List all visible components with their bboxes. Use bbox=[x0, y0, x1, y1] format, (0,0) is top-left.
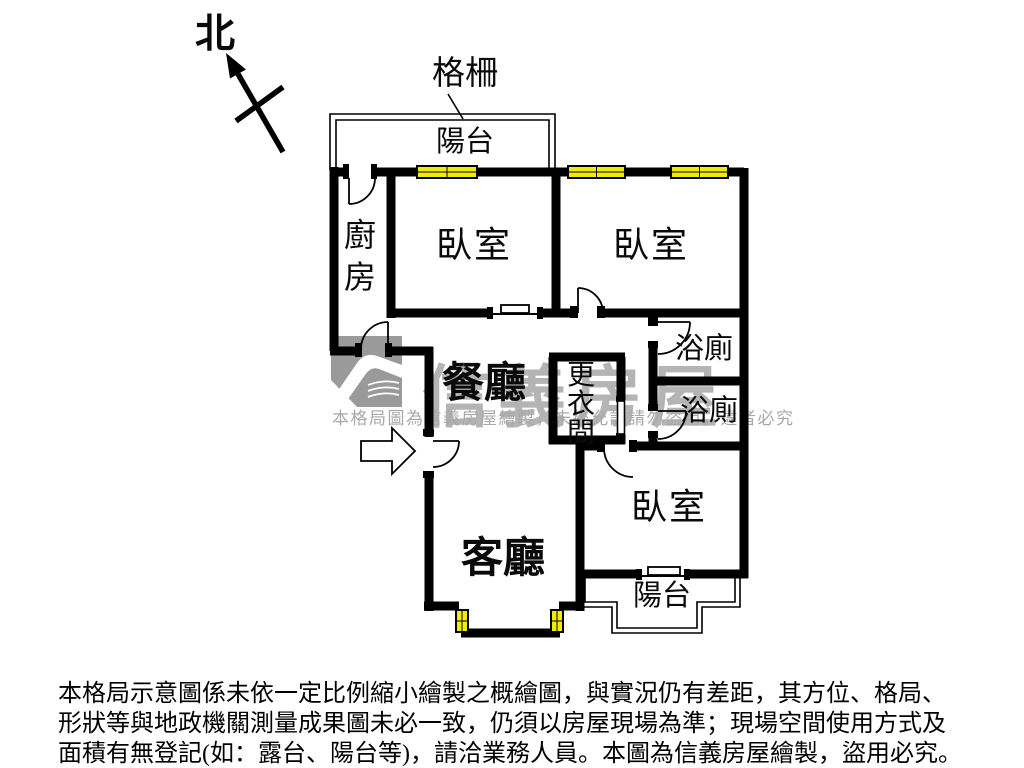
window-top-2 bbox=[568, 166, 625, 178]
grille-label: 格柵 bbox=[432, 57, 498, 92]
balcony-bottom-label: 陽台 bbox=[633, 581, 691, 611]
north-label: 北 bbox=[195, 13, 235, 55]
window-bay-left bbox=[456, 610, 468, 632]
bedroom-top-right-label: 臥室 bbox=[613, 227, 689, 265]
bath-lower-label: 浴廁 bbox=[680, 396, 738, 426]
window-bay-right bbox=[551, 610, 563, 632]
dining-label: 餐廳 bbox=[442, 362, 526, 406]
bath-upper-label: 浴廁 bbox=[675, 334, 733, 364]
living-label: 客廳 bbox=[461, 537, 545, 581]
kitchen-label: 廚房 bbox=[344, 214, 379, 298]
bedroom-bottom-label: 臥室 bbox=[631, 489, 707, 527]
closet-label: 更衣間 bbox=[567, 361, 597, 448]
grille-leader-line bbox=[448, 94, 463, 119]
balcony-sliding-panel bbox=[648, 567, 680, 575]
swing-doors bbox=[349, 178, 690, 477]
bedroom-bottom-door bbox=[604, 448, 633, 477]
bedroom-top-left-label: 臥室 bbox=[436, 227, 512, 265]
bedroom-top-sliding-panel bbox=[501, 305, 529, 313]
north-arrow-icon bbox=[226, 53, 283, 152]
disclaimer-line-3: 面積有無登記(如：露台、陽台等)，請洽業務人員。本圖為信義房屋繪製，盜用必究。 bbox=[58, 733, 962, 768]
entrance-door bbox=[433, 441, 459, 467]
kitchen-dining-door bbox=[361, 322, 388, 349]
balcony-top-label: 陽台 bbox=[436, 127, 494, 157]
floorplan-page: 信義房屋 本格局圖為信義房屋繪製，未經允許請勿盜用，違者必究 bbox=[0, 0, 1024, 768]
entrance-arrow-icon bbox=[361, 428, 415, 474]
window-top-3 bbox=[671, 166, 728, 178]
kitchen-balcony-door bbox=[349, 178, 375, 204]
closet-pocket-door bbox=[618, 401, 625, 434]
window-top-1 bbox=[417, 166, 477, 178]
